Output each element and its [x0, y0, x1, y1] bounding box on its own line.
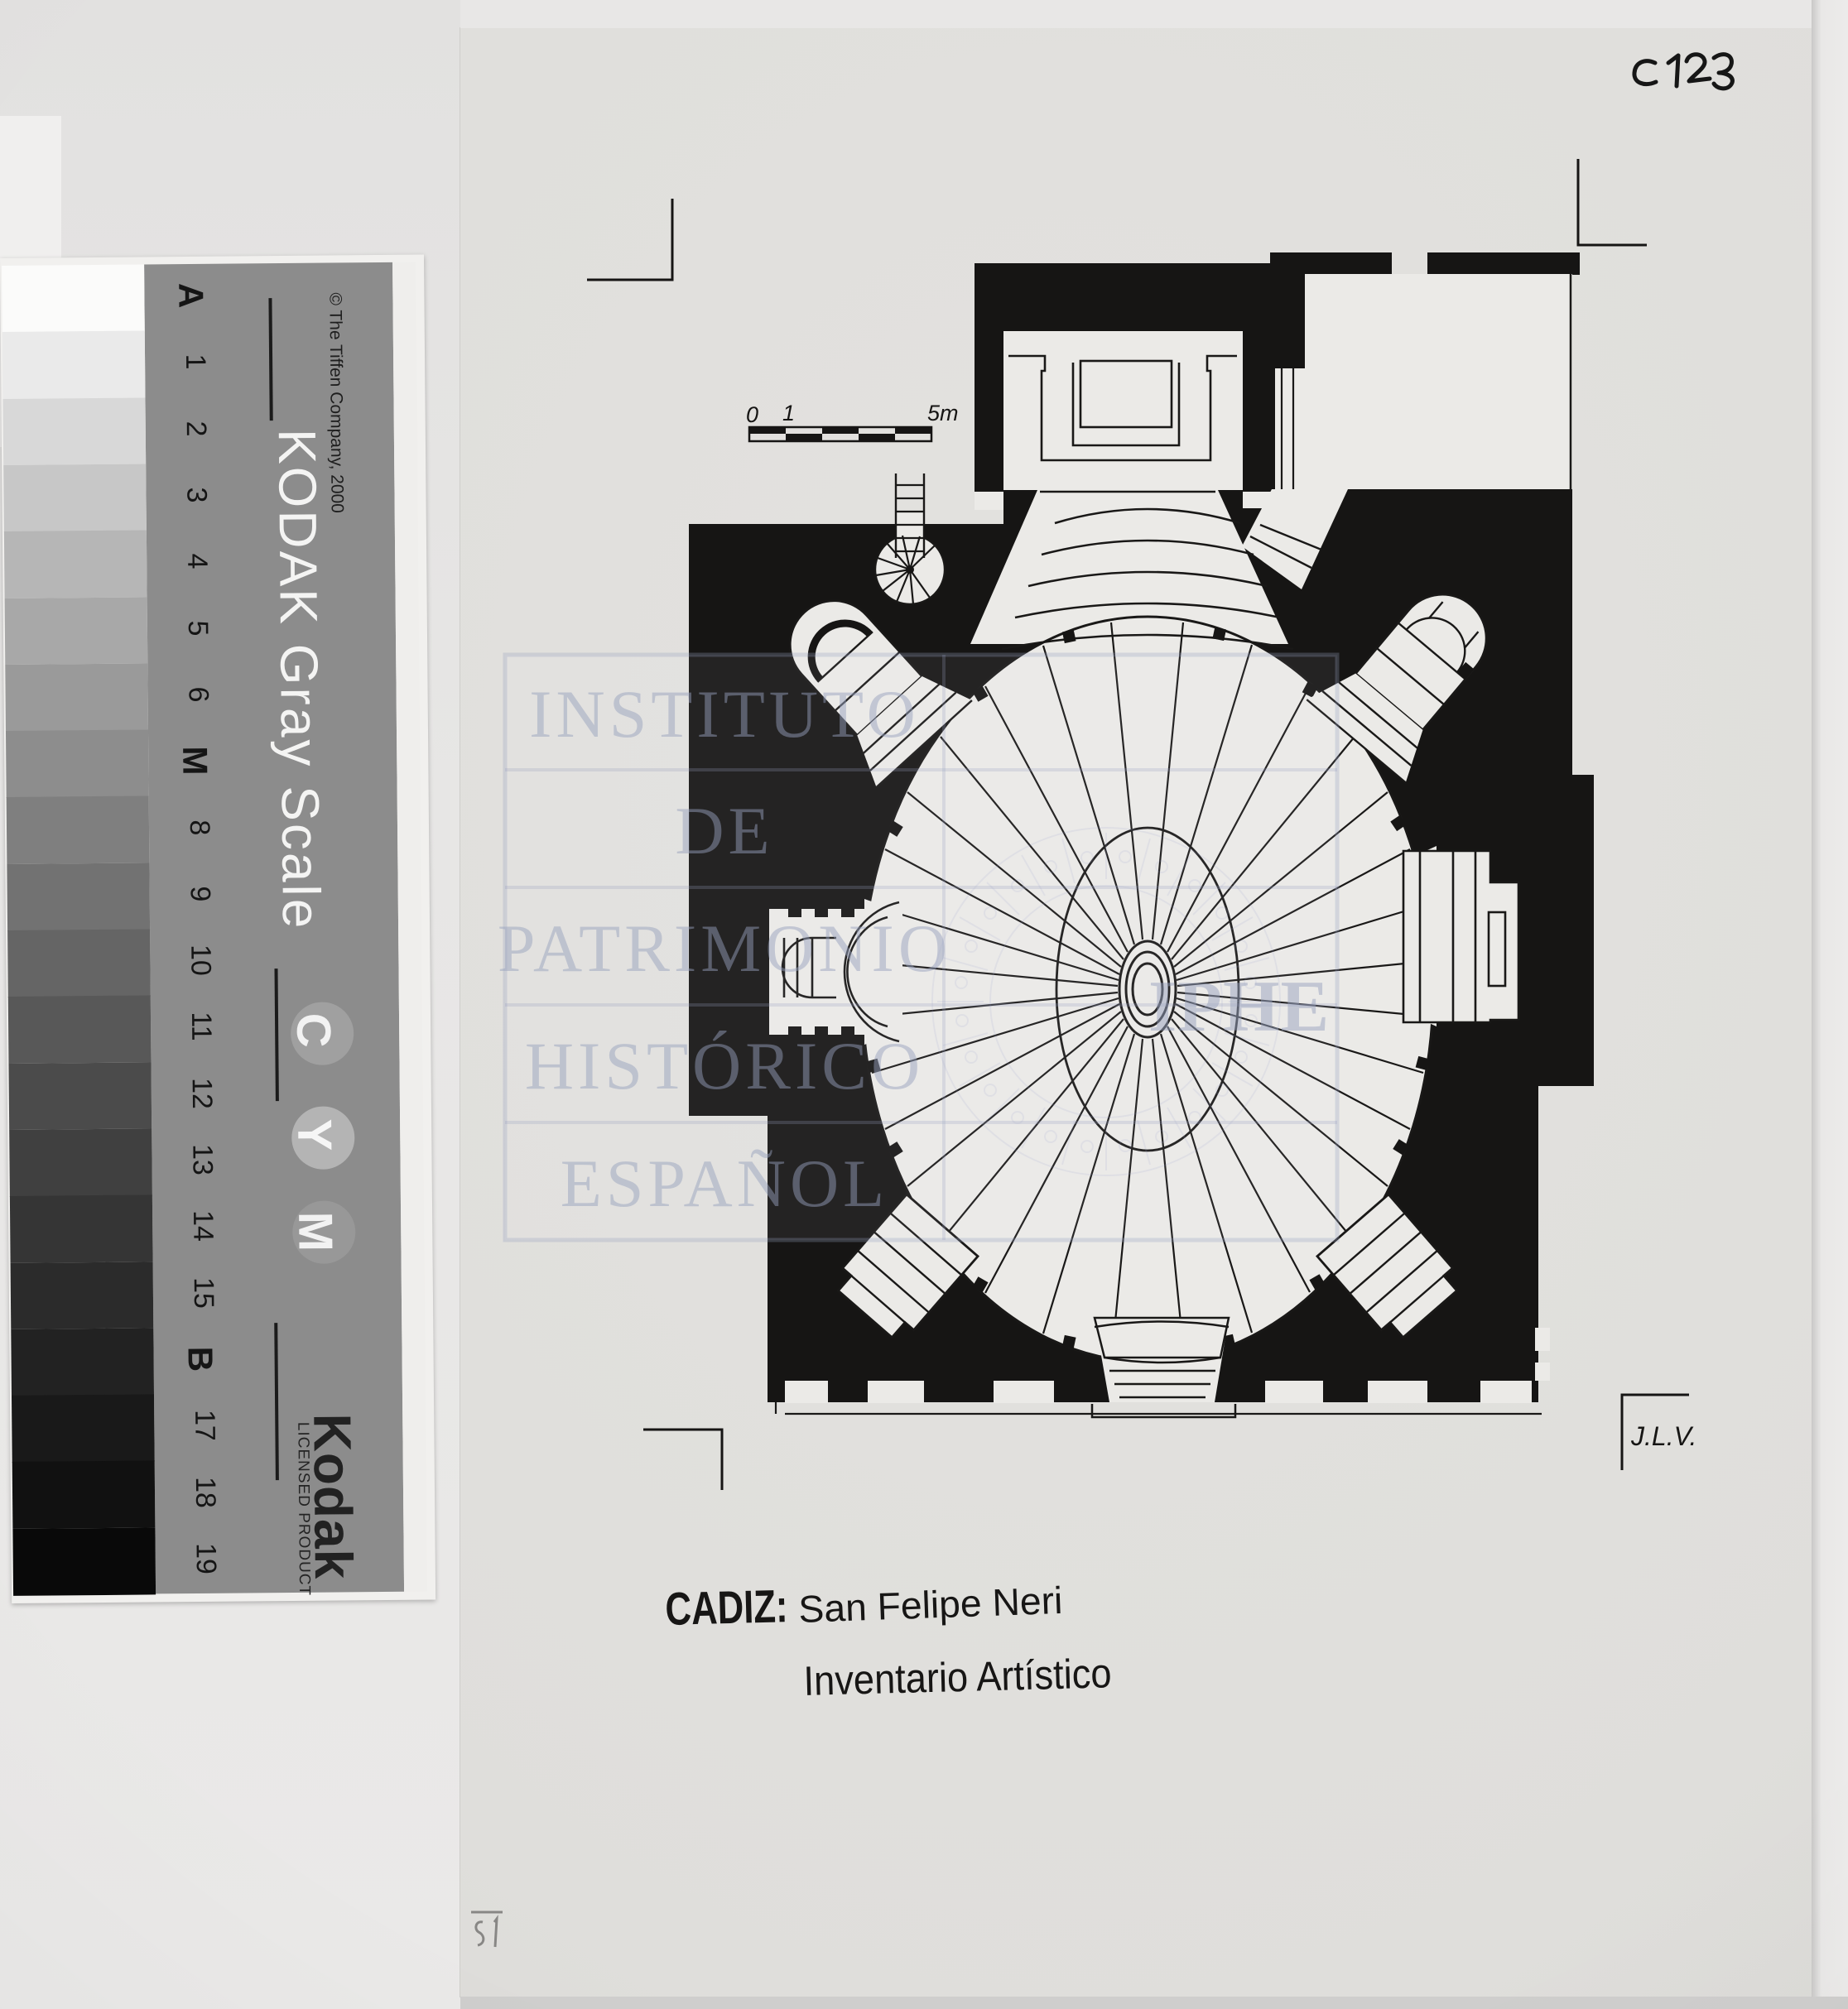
svg-text:J.L.V.: J.L.V. — [1630, 1421, 1696, 1451]
svg-text:DE: DE — [675, 793, 773, 868]
svg-text:IPHE: IPHE — [1148, 967, 1330, 1047]
svg-text:CADIZ:: CADIZ: — [665, 1579, 789, 1635]
svg-text:HISTÓRICO: HISTÓRICO — [525, 1028, 924, 1103]
svg-text:ESPAÑOL: ESPAÑOL — [561, 1146, 889, 1221]
svg-text:PATRIMONIO: PATRIMONIO — [498, 911, 951, 986]
svg-text:0: 0 — [746, 402, 758, 427]
svg-text:Inventario Artístico: Inventario Artístico — [803, 1650, 1112, 1704]
svg-text:San Felipe Neri: San Felipe Neri — [798, 1579, 1064, 1631]
svg-text:INSTITUTO: INSTITUTO — [529, 676, 920, 752]
svg-text:1: 1 — [782, 401, 795, 425]
svg-text:5m: 5m — [927, 401, 959, 425]
